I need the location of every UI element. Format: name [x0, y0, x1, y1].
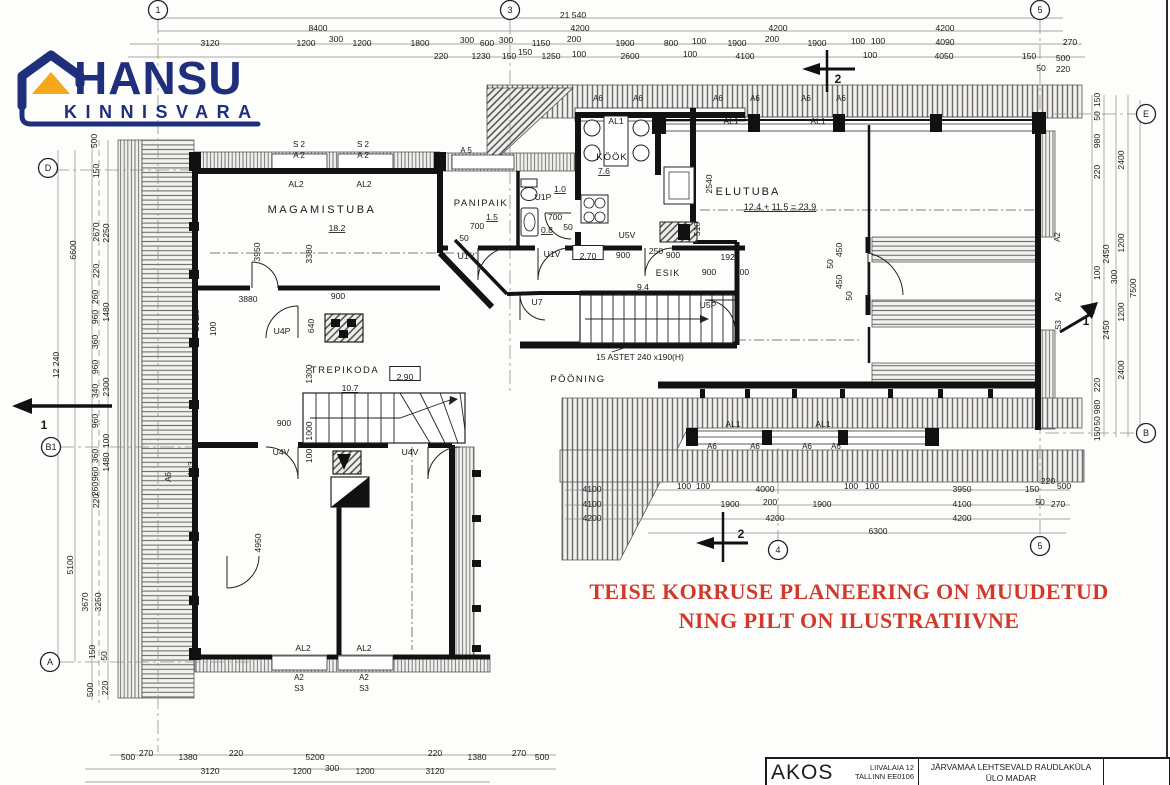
- dim-label: 1200: [352, 38, 371, 48]
- dim-label: 220: [100, 681, 110, 696]
- dim-label: 1200: [1116, 302, 1126, 321]
- dim-label: 4100: [582, 484, 601, 494]
- dim-label: 1480: [101, 302, 111, 321]
- title-block-empty-cell: [1104, 759, 1169, 785]
- dim-label: 3950: [952, 484, 971, 494]
- dim-label: 200: [765, 34, 780, 44]
- dim-label: 150: [1025, 484, 1040, 494]
- dim-label: 1900: [615, 38, 634, 48]
- dim-label: A6: [707, 442, 717, 451]
- dim-label: 100: [692, 36, 707, 46]
- dim-label: 700: [470, 221, 485, 231]
- dim-label: 50: [1092, 111, 1102, 121]
- dim-label: 2400: [1116, 150, 1126, 169]
- dim-label: 1200: [296, 38, 315, 48]
- logo-subname: KINNISVARA: [64, 102, 260, 122]
- grid-bubble-label: 5: [1037, 541, 1042, 551]
- grid-bubble-label: 5: [1037, 5, 1042, 15]
- dim-label: U1V: [458, 251, 475, 261]
- dim-label: 100: [1092, 266, 1102, 281]
- dim-label: 1230: [471, 51, 490, 61]
- dim-label: AL3: [186, 461, 196, 477]
- dim-label: U4V: [402, 447, 419, 457]
- dim-label: 1900: [720, 499, 739, 509]
- section-mark: 2: [835, 72, 842, 86]
- dim-label: 100: [844, 481, 859, 491]
- dim-label: AL2: [288, 179, 304, 189]
- disclaimer-text: TEISE KORRUSE PLANEERING ON MUUDETUD NIN…: [568, 577, 1130, 635]
- dim-label: A6: [801, 94, 811, 103]
- dim-label: A2: [1053, 232, 1062, 242]
- grid-bubble-label: D: [45, 163, 52, 173]
- dim-label: 3670: [80, 592, 90, 611]
- disclaimer-line1: TEISE KORRUSE PLANEERING ON MUUDETUD: [568, 577, 1130, 606]
- dim-label: 2540: [704, 174, 714, 193]
- dim-label: S 2: [357, 140, 370, 149]
- dim-label: 100: [572, 49, 587, 59]
- dim-label: 300: [1109, 270, 1119, 285]
- room-label-pooning: PÖÖNING: [550, 374, 605, 385]
- dim-label: 150: [1022, 51, 1037, 61]
- dim-label: 2450: [1101, 320, 1111, 339]
- dim-label: 50: [844, 291, 854, 301]
- dim-label: 4200: [570, 23, 589, 33]
- dim-label: 1000: [304, 421, 314, 440]
- dim-label: 5100: [65, 555, 75, 574]
- dim-label: A6: [164, 472, 173, 482]
- dim-label: 220: [91, 264, 101, 279]
- dim-label: U4P: [274, 326, 291, 336]
- dim-label: 4200: [952, 513, 971, 523]
- room-area: 10.7: [342, 383, 359, 393]
- stairs-note: 15 ASTET 240 x190(H): [596, 352, 684, 362]
- dim-label: AL1: [810, 116, 826, 126]
- roof-triangle: [32, 72, 70, 94]
- dim-label: 100: [851, 36, 866, 46]
- walls: [195, 108, 1038, 658]
- dim-label: U5P: [700, 300, 717, 310]
- dim-label: 100: [208, 322, 218, 337]
- dim-label: 2300: [101, 377, 111, 396]
- dim-label: 220: [1041, 476, 1056, 486]
- dim-label: 2250: [101, 223, 111, 242]
- room-area: 12.4 + 11.5 = 23.9: [744, 202, 816, 212]
- dim-label: 50: [825, 259, 835, 269]
- dim-label: 270: [512, 748, 527, 758]
- dim-label: 7500: [1128, 278, 1138, 297]
- agency-logo: HANSU KINNISVARA: [10, 50, 268, 134]
- dim-label: 900: [616, 250, 631, 260]
- room-label-panipaik: PANIPAIK: [454, 198, 508, 209]
- dim-label: 5200: [305, 752, 324, 762]
- dim-label: A2: [1054, 292, 1063, 302]
- dim-label: 3250: [93, 592, 103, 611]
- dim-label: 50: [99, 651, 109, 661]
- dim-label: 960: [90, 310, 100, 325]
- dim-label: 300: [325, 763, 340, 773]
- dim-label: 1900: [727, 38, 746, 48]
- room-area: 1.0: [554, 184, 566, 194]
- dim-label: 510: [692, 222, 702, 237]
- dim-label: 300: [499, 35, 514, 45]
- dim-label: 4100: [735, 51, 754, 61]
- dim-label: 220: [1092, 378, 1102, 393]
- dim-label: 340: [90, 384, 100, 399]
- dim-label: A6: [713, 94, 723, 103]
- dim-label: 500: [89, 134, 99, 149]
- dim-label: 300: [329, 34, 344, 44]
- dim-label: 100: [871, 36, 886, 46]
- grid-bubble-label: 4: [775, 545, 780, 555]
- dim-label: 6300: [868, 526, 887, 536]
- dim-label: 1200: [1116, 233, 1126, 252]
- dim-label: 2.90: [397, 372, 414, 382]
- dim-label: 1900: [807, 38, 826, 48]
- dim-label: 1380: [178, 752, 197, 762]
- title-block: AKOS LIIVALAIA 12 TALLINN EE0106 JÄRVAMA…: [765, 757, 1170, 785]
- dim-label: 100: [863, 50, 878, 60]
- dim-label: 220: [1056, 64, 1071, 74]
- dim-label: A 2: [357, 151, 369, 160]
- dim-label: 900: [331, 291, 346, 301]
- room-label-trepikoda: TREPIKODA: [311, 365, 379, 376]
- dim-label: 220: [1092, 165, 1102, 180]
- dim-label: 150: [518, 47, 533, 57]
- room-label-kook: KÖÖK: [596, 152, 627, 163]
- dim-label: A6: [831, 442, 841, 451]
- dim-label: 150: [1092, 427, 1102, 442]
- dim-label: 50: [459, 233, 469, 243]
- room-area: 7.6: [598, 166, 610, 176]
- dim-label: 12 240: [51, 352, 61, 379]
- dim-label: 270: [1051, 499, 1066, 509]
- dim-label: 4000: [755, 484, 774, 494]
- dim-label: 1900: [812, 499, 831, 509]
- room-area: 9.4: [637, 282, 649, 292]
- dim-label: 4950: [253, 533, 263, 552]
- dim-label: 1380: [467, 752, 486, 762]
- room-label-esik: ESIK: [656, 268, 681, 278]
- grid-bubble-label: B: [1143, 428, 1149, 438]
- scanned-floor-plan-page: 21 5408400420042004200312012003001200180…: [0, 0, 1170, 785]
- dim-label: 2600: [620, 51, 639, 61]
- dim-label: 960: [90, 467, 100, 482]
- dim-label: 2450: [1101, 244, 1111, 263]
- dim-label: 100: [735, 267, 750, 277]
- grid-bubble-label: 3: [507, 5, 512, 15]
- dim-label: 50: [1035, 497, 1045, 507]
- dim-label: AL2: [356, 179, 372, 189]
- dim-label: 500: [121, 752, 136, 762]
- dim-label: AL1: [815, 419, 831, 429]
- dim-label: 640: [306, 319, 316, 334]
- dim-label: 500: [535, 752, 550, 762]
- dim-label: 100: [677, 481, 692, 491]
- dim-label: 270: [1063, 37, 1078, 47]
- dim-label: AL1: [725, 419, 741, 429]
- section-mark: 1: [41, 418, 48, 432]
- dim-label: 220: [428, 748, 443, 758]
- dim-label: 700: [548, 212, 563, 222]
- dim-label: 980: [1092, 400, 1102, 415]
- dim-label: 150: [87, 645, 97, 660]
- dim-label: U1V: [544, 249, 561, 259]
- dim-label: 900: [702, 267, 717, 277]
- dim-label: 200: [567, 34, 582, 44]
- dim-label: S3: [359, 684, 369, 693]
- dim-label: 3120: [200, 38, 219, 48]
- title-block-address2: TALLINN EE0106: [855, 772, 914, 781]
- dim-label: 2.70: [580, 251, 597, 261]
- dim-label: A6: [750, 94, 760, 103]
- dim-label: 50: [563, 222, 573, 232]
- dim-label: A6: [836, 94, 846, 103]
- dim-label: 50: [1092, 416, 1102, 426]
- dim-label: 1200: [292, 766, 311, 776]
- dim-label: U5V: [619, 230, 636, 240]
- dim-label: 1200: [355, 766, 374, 776]
- dim-label: 8400: [308, 23, 327, 33]
- grid-bubble-label: 1: [155, 5, 160, 15]
- dim-label: AL1: [608, 116, 624, 126]
- dim-label: S 2: [293, 140, 306, 149]
- dim-label: 600: [480, 38, 495, 48]
- dim-label: A6: [593, 94, 603, 103]
- dim-label: 3380: [304, 244, 314, 263]
- section-mark: 2: [738, 527, 745, 541]
- dim-label: 50: [1036, 63, 1046, 73]
- dim-label: 500: [1057, 481, 1072, 491]
- dim-label: 3880: [238, 294, 257, 304]
- dim-label: A6: [802, 442, 812, 451]
- logo-name: HANSU: [74, 52, 243, 104]
- room-area: 18.2: [329, 223, 346, 233]
- dim-label: 3950: [252, 242, 262, 261]
- dim-label: 100: [101, 434, 111, 449]
- dim-label: 4050: [934, 51, 953, 61]
- dim-label: 1150: [532, 38, 551, 48]
- dim-label: 4090: [935, 37, 954, 47]
- dim-label: 4200: [765, 513, 784, 523]
- title-block-architect: ÜLO MADAR: [986, 773, 1037, 784]
- dim-label: 260: [90, 290, 100, 305]
- dim-label: A2: [359, 673, 369, 682]
- dim-label: 200: [763, 497, 778, 507]
- dim-label: 4100: [582, 499, 601, 509]
- grid-bubble-label: B1: [45, 442, 56, 452]
- grid-bubble-label: E: [1143, 109, 1149, 119]
- dim-label: U7: [532, 297, 543, 307]
- dim-label: 360: [90, 449, 100, 464]
- dim-label: 250: [649, 246, 664, 256]
- room-area: 0.8: [541, 225, 553, 235]
- dim-label: 1920: [720, 252, 739, 262]
- dim-label: 450: [834, 243, 844, 258]
- dim-label: 1480: [101, 452, 111, 471]
- dim-label: 2670: [91, 222, 101, 241]
- dim-label: U1P: [535, 192, 552, 202]
- dim-label: 100: [865, 481, 880, 491]
- dim-label: 100: [304, 449, 314, 464]
- dim-label: 3120: [425, 766, 444, 776]
- room-label-magamistuba: MAGAMISTUBA: [268, 204, 377, 216]
- dim-label: A 2: [293, 151, 305, 160]
- dim-label: 6600: [68, 240, 78, 259]
- dim-label: S3: [294, 684, 304, 693]
- dim-label: 1250: [541, 51, 560, 61]
- section-mark: 1: [1083, 314, 1090, 328]
- dim-label: 150: [1092, 93, 1102, 108]
- dim-label: AL2: [295, 643, 311, 653]
- dim-label: AL1: [723, 116, 739, 126]
- dim-label: S3: [1054, 320, 1063, 330]
- dim-label: 800: [664, 38, 679, 48]
- dim-label: A6: [750, 442, 760, 451]
- disclaimer-line2: NING PILT ON ILUSTRATIIVNE: [568, 606, 1130, 635]
- dim-label: 450: [834, 275, 844, 290]
- dim-label: 270: [139, 748, 154, 758]
- dim-label: 150: [91, 164, 101, 179]
- dim-label: 100: [696, 481, 711, 491]
- dim-label: AL3: [191, 309, 201, 325]
- dim-label: 21 540: [560, 10, 587, 20]
- grid-bubble-label: A: [47, 657, 53, 667]
- dim-label: 4200: [935, 23, 954, 33]
- dim-label: 360: [90, 335, 100, 350]
- dim-label: 220: [434, 51, 449, 61]
- dim-label: 220: [91, 494, 101, 509]
- dim-label: U4V: [273, 447, 290, 457]
- dim-label: 3120: [200, 766, 219, 776]
- dim-label: 220: [229, 748, 244, 758]
- dim-label: 1800: [410, 38, 429, 48]
- dim-label: A2: [294, 673, 304, 682]
- title-block-project: JÄRVAMAA LEHTSEVALD RAUDLAKÜLA: [931, 762, 1092, 773]
- dim-label: 4200: [582, 513, 601, 523]
- dim-label: 500: [85, 683, 95, 698]
- dim-label: 300: [460, 35, 475, 45]
- dim-label: 500: [1056, 53, 1071, 63]
- dim-label: 960: [90, 360, 100, 375]
- dim-label: 100: [683, 49, 698, 59]
- dim-label: 4100: [952, 499, 971, 509]
- dim-label: 1300: [304, 364, 314, 383]
- dim-label: 2400: [1116, 360, 1126, 379]
- dim-label: AL2: [356, 643, 372, 653]
- dim-label: 960: [90, 414, 100, 429]
- dim-label: 900: [666, 250, 681, 260]
- dim-label: A6: [633, 94, 643, 103]
- dim-label: 4200: [768, 23, 787, 33]
- dim-label: A 5: [460, 146, 472, 155]
- dim-label: 980: [1092, 134, 1102, 149]
- room-area: 1.5: [486, 212, 498, 222]
- room-label-elutuba: ELUTUBA: [716, 186, 781, 198]
- title-block-company: AKOS: [771, 761, 833, 785]
- dim-label: 900: [277, 418, 292, 428]
- dim-label: 150: [502, 51, 517, 61]
